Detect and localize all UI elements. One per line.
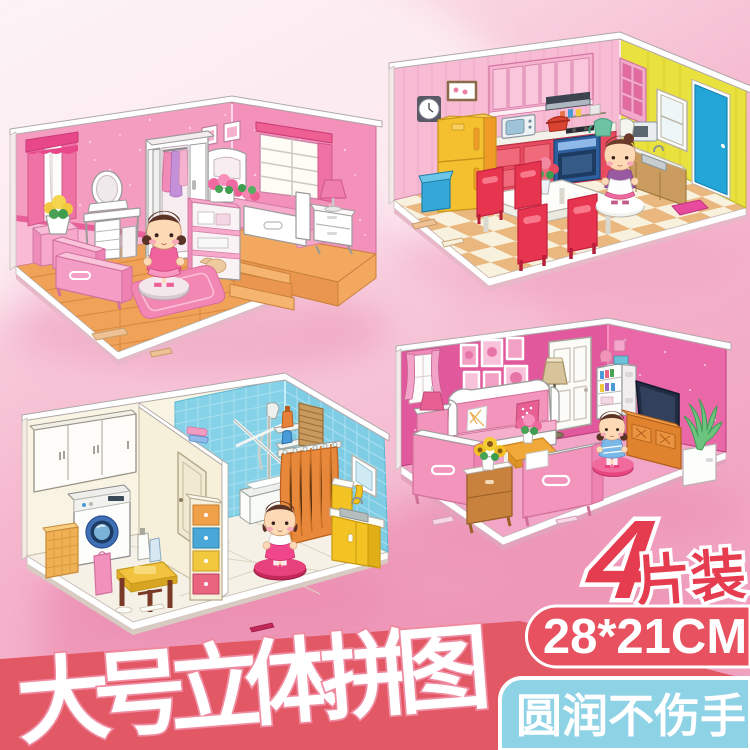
svg-text:片装: 片装 (634, 543, 748, 613)
svg-text:圆润不伤手: 圆润不伤手 (516, 690, 746, 742)
svg-text:28*21CM: 28*21CM (543, 610, 747, 664)
